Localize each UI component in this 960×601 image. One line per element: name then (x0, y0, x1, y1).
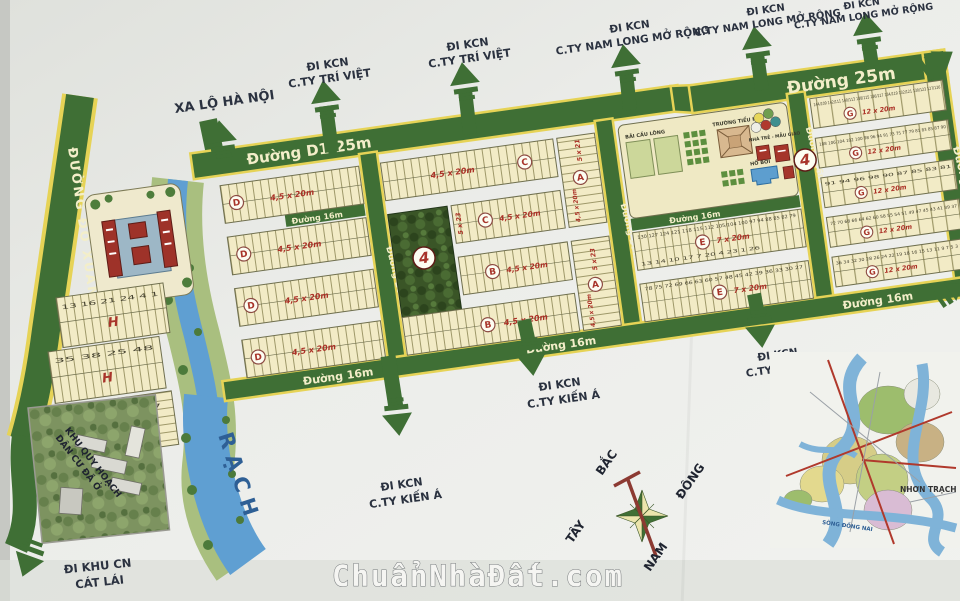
block-a2-letter: A (591, 280, 599, 291)
block-g0-letter: G (846, 109, 854, 119)
block-g2-letter: G (857, 188, 865, 198)
photo-inset-existing-area: KHU QUY HOẠCH DÂN CƯ ĐÃ Ở (28, 395, 170, 544)
watermark: ChuẩnNhàĐất.com (332, 559, 624, 593)
block-g3-letter: G (863, 228, 871, 238)
block-g4-letter: G (869, 267, 877, 277)
block-d4-letter: D (254, 353, 263, 364)
block-h2-letter: H (101, 370, 114, 386)
map-canvas: ĐƯỜNG ĐỖ XUÂN HỢP RẠCH 13 16 21 24 4 1 H (0, 0, 960, 601)
block-d2-letter: D (239, 250, 248, 261)
block-d1-letter: D (232, 198, 241, 209)
block-h1-letter: H (107, 315, 120, 331)
photographed-subdivision-map: { "watermark": "ChuẩnNhàĐất.com", "color… (0, 0, 960, 601)
block-d3-letter: D (247, 301, 256, 312)
block-a1-letter: A (576, 173, 584, 184)
badminton-court-1 (626, 139, 655, 178)
paper-shadow-left (0, 0, 10, 601)
minimap-area-label: NHƠN TRẠCH (900, 485, 956, 494)
block-g1-letter: G (852, 148, 860, 158)
city-locator-minimap: SÔNG ĐỒNG NAI NHƠN TRẠCH (770, 352, 960, 552)
school-building (717, 125, 753, 157)
badminton-court-2 (654, 135, 683, 174)
